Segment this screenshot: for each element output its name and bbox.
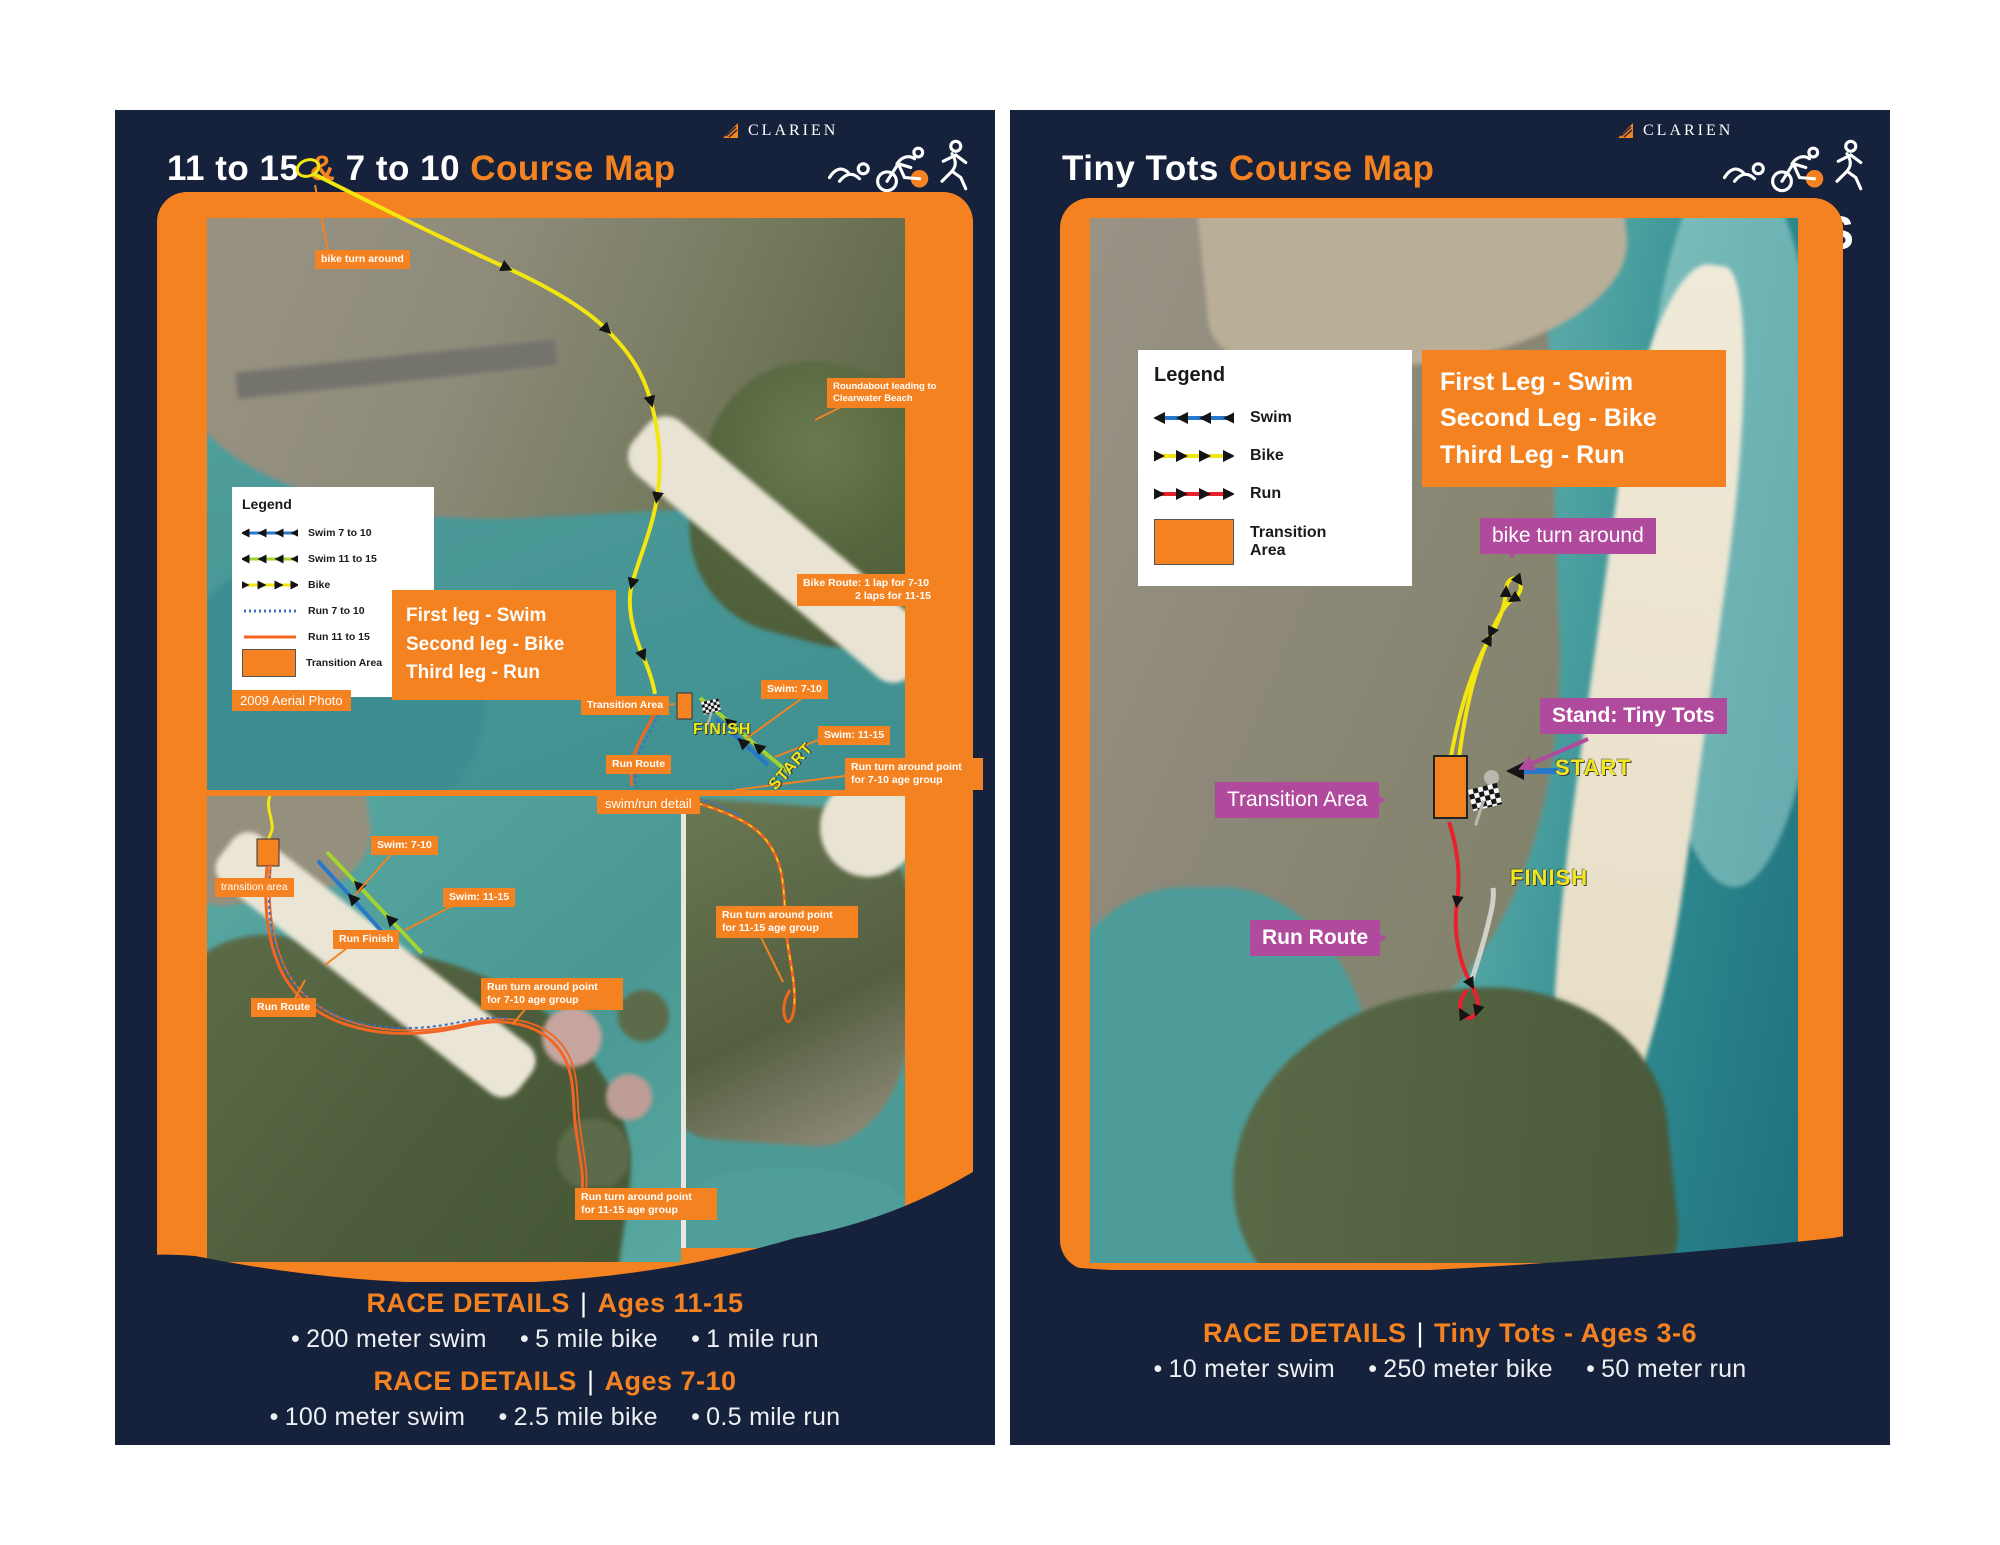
callout-strip-run-turn-11-15: Run turn around point for 11-15 age grou… bbox=[716, 906, 858, 938]
run-turn-line1: Run turn around point bbox=[487, 981, 617, 994]
callout-transition-area: Transition Area bbox=[1215, 782, 1379, 818]
leg-3: Third Leg - Run bbox=[1440, 437, 1708, 473]
race-details-heading: RACE DETAILS bbox=[366, 1288, 570, 1318]
legend-title: Legend bbox=[242, 496, 424, 512]
callout-detail-transition-area: transition area bbox=[215, 878, 294, 897]
callout-bike-turn-around: bike turn around bbox=[315, 250, 410, 269]
stat-swim: 10 meter swim bbox=[1169, 1355, 1335, 1383]
page-title-right: Tiny Tots Course Map bbox=[1062, 149, 1434, 189]
title-course-map: Course Map bbox=[1229, 149, 1434, 188]
leg-2: Second leg - Bike bbox=[406, 631, 602, 660]
transition-area-swatch bbox=[1154, 519, 1234, 565]
legend-label: Run bbox=[1250, 485, 1281, 503]
run-turn-line1: Run turn around point bbox=[581, 1191, 711, 1204]
run-11-15-line-icon bbox=[242, 632, 298, 642]
legend-label: Run 7 to 10 bbox=[308, 605, 365, 617]
leg-1: First leg - Swim bbox=[406, 602, 602, 631]
race-details-11-15: RACE DETAILS|Ages 11-15 •200 meter swim … bbox=[115, 1288, 995, 1354]
callout-roundabout: Roundabout leading to Clearwater Beach bbox=[827, 378, 947, 408]
run-route-strip-map bbox=[686, 796, 905, 1248]
leg-3: Third leg - Run bbox=[406, 659, 602, 688]
callout-detail-run-turn-7-10: Run turn around point for 7-10 age group bbox=[481, 978, 623, 1010]
run-turn-line2: for 7-10 age group bbox=[851, 774, 977, 787]
callout-run-turn-7-10: Run turn around point for 7-10 age group bbox=[845, 758, 983, 790]
race-details-group: Ages 7-10 bbox=[604, 1366, 736, 1396]
bullet: • bbox=[1153, 1355, 1168, 1383]
bullet: • bbox=[1560, 1355, 1601, 1383]
run-turn-line1: Run turn around point bbox=[851, 761, 977, 774]
stat-bike: 250 meter bike bbox=[1383, 1355, 1553, 1383]
run-turn-line2: for 11-15 age group bbox=[722, 922, 852, 935]
stat-bike: 5 mile bike bbox=[535, 1325, 658, 1353]
run-turn-line1: Run turn around point bbox=[722, 909, 852, 922]
callout-roundabout-line1: Roundabout leading to bbox=[833, 381, 941, 393]
aerial-photo-note: 2009 Aerial Photo bbox=[232, 690, 351, 711]
legend-title: Legend bbox=[1154, 364, 1396, 387]
legend-label: Bike bbox=[308, 579, 330, 591]
callout-detail-swim-11-15: Swim: 11-15 bbox=[443, 888, 515, 907]
race-details-stats: •10 meter swim •250 meter bike •50 meter… bbox=[1010, 1355, 1890, 1384]
legend-label: Run 11 to 15 bbox=[308, 631, 370, 643]
race-details-heading: RACE DETAILS bbox=[373, 1366, 577, 1396]
finish-flag-icon bbox=[1465, 770, 1511, 826]
title-ages-7-10: 7 to 10 bbox=[346, 149, 471, 188]
leg-2: Second Leg - Bike bbox=[1440, 400, 1708, 436]
race-details-group: Ages 11-15 bbox=[597, 1288, 743, 1318]
callout-detail-swim-7-10: Swim: 7-10 bbox=[371, 836, 438, 855]
race-details-7-10: RACE DETAILS|Ages 7-10 •100 meter swim •… bbox=[115, 1366, 995, 1432]
callout-swim-11-15: Swim: 11-15 bbox=[818, 726, 890, 745]
strip-water bbox=[686, 1167, 905, 1248]
race-details-group: Tiny Tots - Ages 3-6 bbox=[1434, 1318, 1697, 1348]
bullet: • bbox=[1342, 1355, 1383, 1383]
clarien-wordmark: CLARIEN bbox=[748, 122, 838, 140]
bullet: • bbox=[494, 1325, 535, 1353]
callout-detail-run-route: Run Route bbox=[251, 998, 316, 1017]
race-details-tiny-tots: RACE DETAILS|Tiny Tots - Ages 3-6 •10 me… bbox=[1010, 1318, 1890, 1384]
bullet: • bbox=[291, 1325, 306, 1353]
stat-swim: 200 meter swim bbox=[306, 1325, 487, 1353]
start-text: START bbox=[1555, 755, 1632, 781]
callout-stand-tiny-tots: Stand: Tiny Tots bbox=[1540, 698, 1727, 734]
detail-map-title: swim/run detail bbox=[597, 793, 700, 814]
legend-label: Transition Area bbox=[306, 657, 382, 669]
callout-transition-area: Transition Area bbox=[581, 696, 669, 715]
run-7-10-dotted-line-icon bbox=[242, 606, 298, 616]
callout-bike-turn-around: bike turn around bbox=[1480, 518, 1656, 554]
race-details-separator: | bbox=[570, 1288, 598, 1318]
clarien-wordmark: CLARIEN bbox=[1643, 122, 1733, 140]
page-title-left: 11 to 15 & 7 to 10 Course Map bbox=[167, 149, 676, 189]
legend-item-run: Run bbox=[1154, 475, 1396, 513]
callout-run-route: Run Route bbox=[606, 755, 671, 774]
bullet: • bbox=[270, 1403, 285, 1431]
stat-bike: 2.5 mile bike bbox=[514, 1403, 658, 1431]
swim-11-15-line-icon bbox=[242, 554, 298, 564]
bike-route-line1: 1 lap for 7-10 bbox=[864, 577, 929, 589]
race-details-heading: RACE DETAILS bbox=[1203, 1318, 1407, 1348]
legend-label: Bike bbox=[1250, 447, 1284, 465]
bullet: • bbox=[473, 1403, 514, 1431]
race-details-stats: •100 meter swim •2.5 mile bike •0.5 mile… bbox=[115, 1403, 995, 1432]
clarien-sail-icon bbox=[721, 121, 741, 141]
race-legs-box: First Leg - Swim Second Leg - Bike Third… bbox=[1422, 350, 1726, 487]
bike-route-title: Bike Route: bbox=[803, 577, 861, 589]
stat-swim: 100 meter swim bbox=[285, 1403, 466, 1431]
stat-run: 0.5 mile run bbox=[706, 1403, 840, 1431]
legend-item-swim-11-15: Swim 11 to 15 bbox=[242, 546, 424, 572]
race-details-separator: | bbox=[577, 1366, 605, 1396]
course-map-panel-tiny-tots: Tiny Tots Course Map CLARIEN IRON KDS bbox=[1010, 110, 1890, 1445]
swim-line-icon bbox=[1154, 412, 1234, 424]
poster-page: 11 to 15 & 7 to 10 Course Map CLARIEN IR… bbox=[0, 0, 2000, 1545]
callout-roundabout-line2: Clearwater Beach bbox=[833, 393, 941, 405]
clarien-sail-icon bbox=[1616, 121, 1636, 141]
stat-run: 1 mile run bbox=[706, 1325, 819, 1353]
finish-flag-icon-main bbox=[700, 700, 726, 726]
leg-1: First Leg - Swim bbox=[1440, 364, 1708, 400]
bullet: • bbox=[665, 1403, 706, 1431]
legend-label: Transition Area bbox=[1250, 524, 1340, 559]
legend-label: Swim 7 to 10 bbox=[308, 527, 372, 539]
race-details-separator: | bbox=[1406, 1318, 1434, 1348]
swim-7-10-line-icon bbox=[242, 528, 298, 538]
bullet: • bbox=[665, 1325, 706, 1353]
title-tiny-tots: Tiny Tots bbox=[1062, 149, 1229, 188]
title-course-map: Course Map bbox=[470, 149, 675, 188]
finish-text: FINISH bbox=[1510, 865, 1588, 891]
legend-item-swim-7-10: Swim 7 to 10 bbox=[242, 520, 424, 546]
bike-line-icon bbox=[242, 580, 298, 590]
triathlon-figures-icon bbox=[827, 136, 977, 194]
transition-area-swatch bbox=[242, 649, 296, 677]
bike-route-line2: 2 laps for 11-15 bbox=[803, 590, 931, 603]
legend-item-transition-area: Transition Area bbox=[1154, 513, 1396, 571]
race-legs-box: First leg - Swim Second leg - Bike Third… bbox=[392, 590, 616, 700]
run-turn-line2: for 11-15 age group bbox=[581, 1204, 711, 1217]
title-ampersand: & bbox=[299, 149, 345, 188]
run-line-icon bbox=[1154, 488, 1234, 500]
legend-box: Legend Swim Bike Run Transition Area bbox=[1138, 350, 1412, 586]
legend-item-swim: Swim bbox=[1154, 399, 1396, 437]
run-turn-line2: for 7-10 age group bbox=[487, 994, 617, 1007]
callout-run-route: Run Route bbox=[1250, 920, 1380, 956]
callout-detail-run-turn-11-15: Run turn around point for 11-15 age grou… bbox=[575, 1188, 717, 1220]
legend-item-bike: Bike bbox=[1154, 437, 1396, 475]
legend-label: Swim bbox=[1250, 409, 1292, 427]
title-ages-11-15: 11 to 15 bbox=[167, 149, 299, 188]
course-map-panel-11-15-7-10: 11 to 15 & 7 to 10 Course Map CLARIEN IR… bbox=[115, 110, 995, 1445]
callout-detail-run-finish: Run Finish bbox=[333, 930, 399, 949]
triathlon-figures-icon bbox=[1722, 136, 1872, 194]
callout-swim-7-10: Swim: 7-10 bbox=[761, 680, 828, 699]
race-details-stats: •200 meter swim •5 mile bike •1 mile run bbox=[115, 1325, 995, 1354]
bike-line-icon bbox=[1154, 450, 1234, 462]
callout-bike-route-laps: Bike Route: 1 lap for 7-10 2 laps for 11… bbox=[797, 574, 937, 606]
legend-label: Swim 11 to 15 bbox=[308, 553, 377, 565]
stat-run: 50 meter run bbox=[1601, 1355, 1746, 1383]
